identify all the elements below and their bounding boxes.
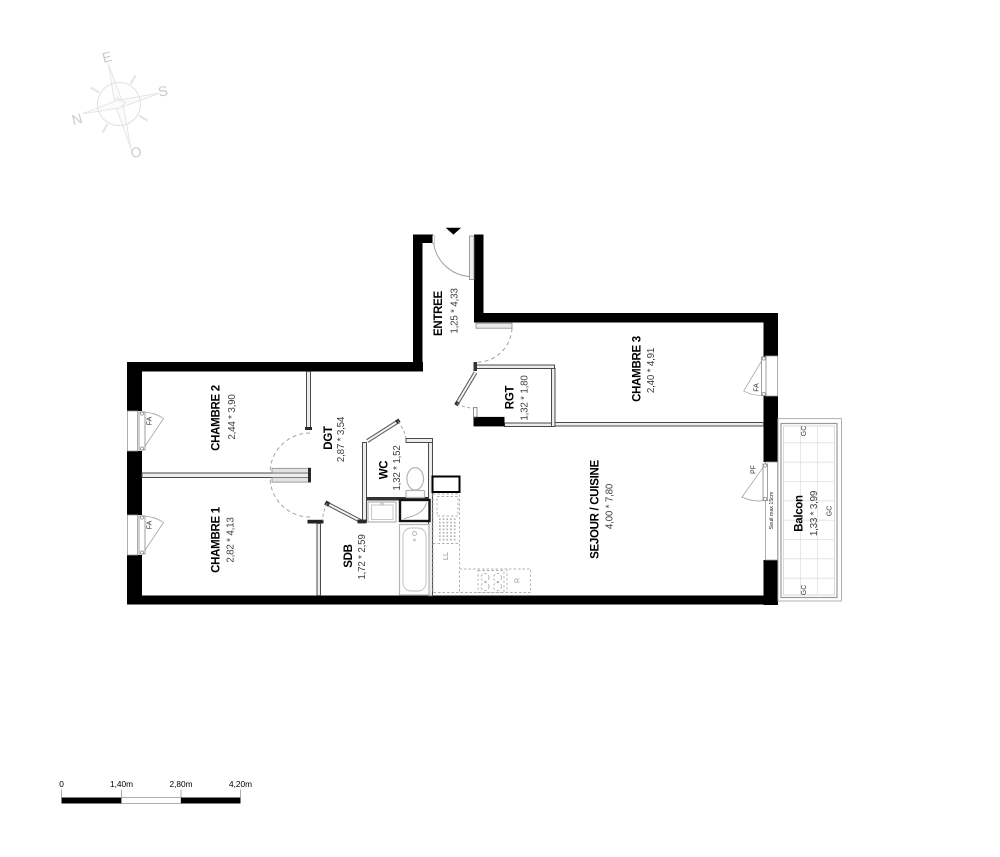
svg-text:1,32 * 1,80: 1,32 * 1,80 bbox=[519, 375, 530, 421]
svg-text:2,87 * 3,54: 2,87 * 3,54 bbox=[336, 416, 347, 462]
svg-text:GC: GC bbox=[801, 585, 808, 596]
svg-text:CHAMBRE 3: CHAMBRE 3 bbox=[632, 336, 644, 402]
svg-text:GC: GC bbox=[826, 506, 833, 517]
svg-text:2,82 * 4,13: 2,82 * 4,13 bbox=[226, 517, 237, 563]
svg-text:FA: FA bbox=[146, 416, 153, 425]
svg-text:FA: FA bbox=[146, 520, 153, 529]
svg-text:4,20m: 4,20m bbox=[229, 779, 252, 789]
svg-text:FA: FA bbox=[753, 383, 760, 392]
svg-text:Balcon: Balcon bbox=[794, 495, 806, 532]
svg-text:ENTREE: ENTREE bbox=[433, 290, 445, 335]
svg-text:1,72 * 2,59: 1,72 * 2,59 bbox=[357, 534, 368, 579]
svg-text:LL: LL bbox=[441, 552, 450, 560]
svg-text:0: 0 bbox=[59, 779, 64, 789]
svg-text:DGT: DGT bbox=[323, 426, 335, 450]
svg-text:GC: GC bbox=[801, 426, 808, 437]
svg-text:CHAMBRE 2: CHAMBRE 2 bbox=[211, 385, 223, 451]
svg-text:1,25 * 4,33: 1,25 * 4,33 bbox=[449, 288, 460, 334]
svg-text:CHAMBRE 1: CHAMBRE 1 bbox=[211, 506, 223, 573]
svg-text:RGT: RGT bbox=[505, 386, 517, 410]
svg-text:1,32 * 1,52: 1,32 * 1,52 bbox=[392, 445, 403, 490]
svg-text:2,80m: 2,80m bbox=[169, 779, 192, 789]
svg-text:1,40m: 1,40m bbox=[110, 779, 133, 789]
svg-text:4,00 * 7,80: 4,00 * 7,80 bbox=[605, 483, 616, 529]
svg-text:SEJOUR / CUISINE: SEJOUR / CUISINE bbox=[589, 460, 601, 559]
svg-text:1,33 * 3,99: 1,33 * 3,99 bbox=[809, 491, 820, 536]
svg-text:2,44 * 3,90: 2,44 * 3,90 bbox=[227, 394, 238, 440]
svg-text:Seuil max 15cm: Seuil max 15cm bbox=[769, 491, 775, 529]
svg-text:2,40 * 4,91: 2,40 * 4,91 bbox=[646, 348, 657, 393]
svg-text:SDB: SDB bbox=[343, 544, 355, 567]
svg-text:WC: WC bbox=[379, 461, 391, 480]
svg-text:R: R bbox=[514, 578, 521, 583]
svg-text:PF: PF bbox=[750, 465, 757, 474]
